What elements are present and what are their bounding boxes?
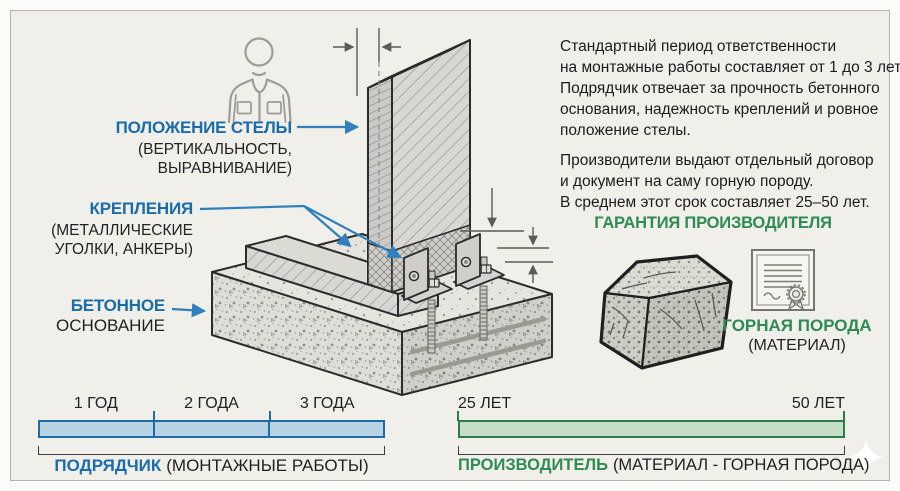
contractor-segment-3: 3 ГОДА <box>269 395 385 413</box>
contractor-timeline-bar <box>38 420 385 438</box>
callout-fasteners: КРЕПЛЕНИЯ (МЕТАЛЛИЧЕСКИЕ УГОЛКИ, АНКЕРЫ) <box>40 199 193 259</box>
info-p1-line2: на монтажные работы составляет от 1 до 3… <box>560 57 890 78</box>
contractor-caption: ПОДРЯДЧИК(МОНТАЖНЫЕ РАБОТЫ) <box>18 456 405 476</box>
callout-concrete-title: БЕТОННОЕ <box>40 296 165 316</box>
callout-fasteners-title: КРЕПЛЕНИЯ <box>40 199 193 219</box>
arrow-fasteners-stem <box>200 206 304 209</box>
arrow-concrete-base <box>172 309 204 311</box>
callout-concrete-base: БЕТОННОЕ ОСНОВАНИЕ <box>40 296 165 336</box>
callout-stele-position: ПОЛОЖЕНИЕ СТЕЛЫ (ВЕРТИКАЛЬНОСТЬ, ВЫРАВНИ… <box>40 118 292 178</box>
info-text: Стандартный период ответственности на мо… <box>560 36 890 213</box>
callout-fasteners-line2: УГОЛКИ, АНКЕРЫ) <box>40 240 193 259</box>
material-note: (МАТЕРИАЛ) <box>712 336 882 356</box>
callout-stele-position-line1: (ВЕРТИКАЛЬНОСТЬ, <box>40 140 292 159</box>
contractor-caption-emph: ПОДРЯДЧИК <box>54 456 161 475</box>
manufacturer-bracket <box>458 446 845 455</box>
certificate-icon <box>752 250 814 310</box>
contractor-segment-2: 2 ГОДА <box>154 395 270 413</box>
warranty-heading: ГАРАНТИЯ ПРОИЗВОДИТЕЛЯ <box>558 214 868 233</box>
manufacturer-caption-note: (МАТЕРИАЛ - ГОРНАЯ ПОРОДА) <box>613 456 870 474</box>
manufacturer-caption: ПРОИЗВОДИТЕЛЬ(МАТЕРИАЛ - ГОРНАЯ ПОРОДА) <box>458 456 845 475</box>
contractor-bracket <box>38 446 385 455</box>
info-p1-line1: Стандартный период ответственности <box>560 36 890 57</box>
material-title: ГОРНАЯ ПОРОДА <box>712 316 882 336</box>
info-p1-line3: Подрядчик отвечает за прочность бетонног… <box>560 78 890 99</box>
callout-stele-position-title: ПОЛОЖЕНИЕ СТЕЛЫ <box>40 118 292 138</box>
info-p2-line3: В среднем этот срок составляет 25–50 лет… <box>560 192 890 213</box>
info-p1-line5: положение стелы. <box>560 120 890 141</box>
contractor-bar-divider-1 <box>153 422 155 436</box>
contractor-segment-1: 1 ГОД <box>38 395 154 413</box>
manufacturer-start-label: 25 ЛЕТ <box>458 395 511 413</box>
info-p2-line2: и документ на саму горную породу. <box>560 171 890 192</box>
worker-icon <box>229 39 291 123</box>
contractor-caption-note: (МОНТАЖНЫЕ РАБОТЫ) <box>166 456 368 475</box>
infographic: ПОЛОЖЕНИЕ СТЕЛЫ (ВЕРТИКАЛЬНОСТЬ, ВЫРАВНИ… <box>0 0 900 491</box>
contractor-bar-divider-2 <box>268 422 270 436</box>
manufacturer-timeline-bar <box>458 420 845 438</box>
manufacturer-end-label: 50 ЛЕТ <box>745 395 845 413</box>
contractor-timeline-labels: 1 ГОД 2 ГОДА 3 ГОДА <box>38 395 385 413</box>
callout-fasteners-line1: (МЕТАЛЛИЧЕСКИЕ <box>40 221 193 240</box>
callout-concrete-line1: ОСНОВАНИЕ <box>40 316 165 336</box>
manufacturer-caption-emph: ПРОИЗВОДИТЕЛЬ <box>458 456 608 474</box>
callout-stele-position-line2: ВЫРАВНИВАНИЕ) <box>40 159 292 178</box>
info-p2-line1: Производители выдают отдельный договор <box>560 150 890 171</box>
material-label: ГОРНАЯ ПОРОДА (МАТЕРИАЛ) <box>712 316 882 356</box>
info-p1-line4: основания, надежность креплений и ровное <box>560 99 890 120</box>
